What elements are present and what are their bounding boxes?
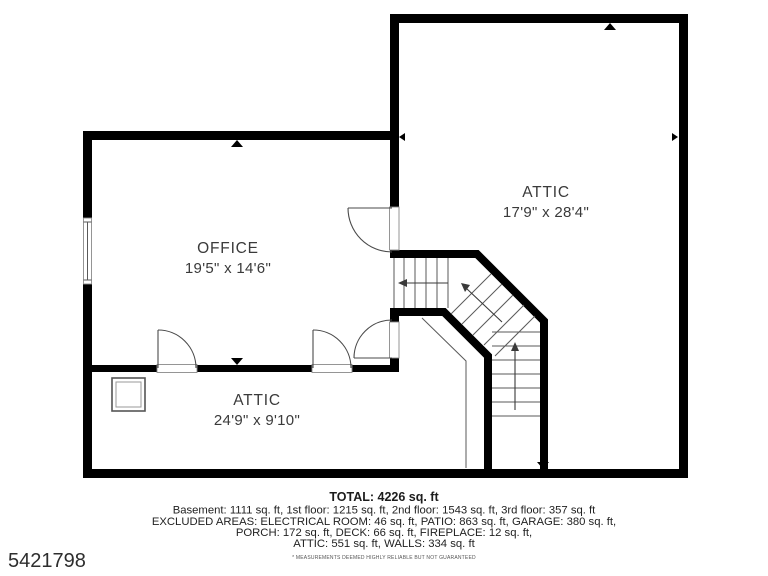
interior-walls xyxy=(92,14,399,372)
wall-office-top xyxy=(83,131,399,140)
marker-attic-top xyxy=(604,23,616,30)
wall-left-upper xyxy=(83,131,92,218)
marker-center-wall xyxy=(399,133,405,141)
wall-markers xyxy=(231,23,678,469)
floors-area-text: Basement: 1111 sq. ft, 1st floor: 1215 s… xyxy=(173,505,596,517)
window-left xyxy=(84,218,92,284)
exterior-walls xyxy=(83,14,688,478)
area-summary: TOTAL: 4226 sq. ft Basement: 1111 sq. ft… xyxy=(152,490,616,561)
ceiling-slope-line xyxy=(422,318,466,468)
wall-center-vert-upper xyxy=(390,14,399,207)
room-attic-right-name: ATTIC xyxy=(522,184,570,201)
door-jamb-lower xyxy=(390,322,400,358)
excluded-areas-text-3: ATTIC: 551 sq. ft, WALLS: 334 sq. ft xyxy=(293,538,475,550)
room-attic-right-dims: 17'9" x 28'4" xyxy=(503,204,589,221)
total-area-text: TOTAL: 4226 sq. ft xyxy=(329,490,439,504)
door-arc-upper xyxy=(348,208,392,252)
door2-arc xyxy=(313,330,351,368)
floorplan-drawing: ATTIC 17'9" x 28'4" OFFICE 19'5" x 14'6"… xyxy=(0,0,768,576)
floorplan-page: ATTIC 17'9" x 28'4" OFFICE 19'5" x 14'6"… xyxy=(0,0,768,576)
marker-right-wall xyxy=(672,133,678,141)
wall-office-bottom-a xyxy=(92,365,157,372)
wall-right xyxy=(679,14,688,478)
wall-bottom xyxy=(83,469,688,478)
stairwell-inner-wall xyxy=(390,312,488,469)
room-attic-bottom-dims: 24'9" x 9'10" xyxy=(214,412,300,429)
wall-office-bottom-c xyxy=(352,365,398,372)
door1-arc xyxy=(158,330,196,368)
listing-id: 5421798 xyxy=(8,550,86,572)
doors xyxy=(157,207,399,373)
door2-jamb xyxy=(312,365,352,373)
room-office-dims: 19'5" x 14'6" xyxy=(185,260,271,277)
marker-office-top xyxy=(231,140,243,147)
stair-direction-arrows xyxy=(398,279,519,410)
marker-office-bottom xyxy=(231,358,243,365)
wall-left-lower xyxy=(83,284,92,469)
chimney xyxy=(112,378,145,411)
door-jamb-upper xyxy=(390,207,400,250)
disclaimer-text: * MEASUREMENTS DEEMED HIGHLY RELIABLE BU… xyxy=(292,555,476,561)
wall-office-bottom-b xyxy=(197,365,312,372)
room-office-name: OFFICE xyxy=(197,240,259,257)
door1-jamb xyxy=(157,365,197,373)
wall-top-right xyxy=(390,14,688,23)
door-arc-lower xyxy=(354,320,392,358)
room-attic-bottom-name: ATTIC xyxy=(233,392,281,409)
